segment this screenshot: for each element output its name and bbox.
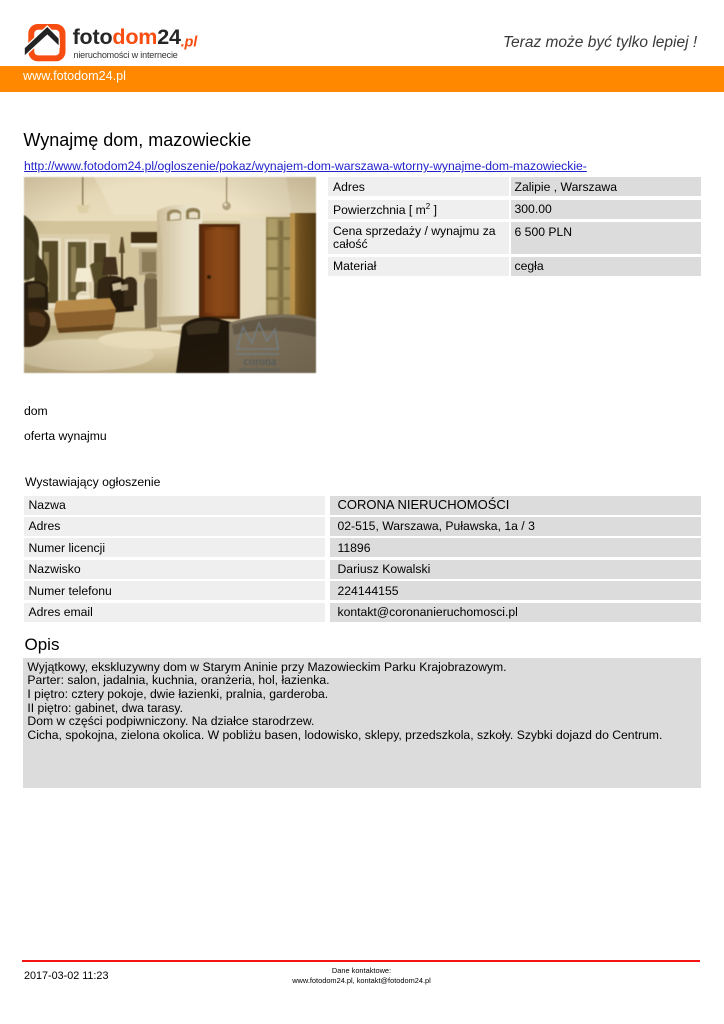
svg-text:nieruchomości: nieruchomości	[239, 366, 280, 373]
